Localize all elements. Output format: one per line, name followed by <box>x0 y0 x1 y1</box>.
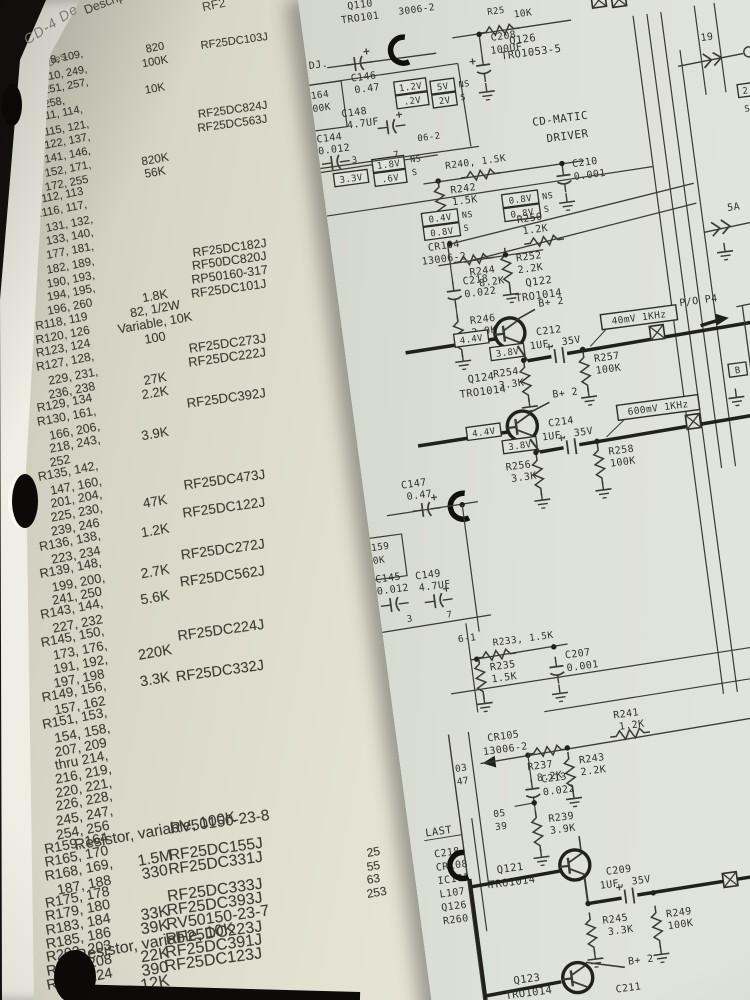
wire <box>566 210 570 211</box>
label-c214: C214 <box>548 415 575 429</box>
junction-dot <box>531 800 537 806</box>
wire <box>434 494 435 500</box>
wire <box>625 890 627 904</box>
wire <box>476 64 490 66</box>
wire <box>660 962 664 963</box>
label-cdm1: CD-MATIC <box>531 109 588 129</box>
label-bp2a: B+ 2 <box>538 296 565 310</box>
wire <box>735 389 736 398</box>
binder-hole <box>12 474 38 528</box>
desc-line: 2.7K <box>139 560 170 581</box>
voltage-label: 3.8V <box>508 440 533 453</box>
last-list-item: R260 <box>442 913 469 927</box>
capacitor-icon <box>448 296 462 300</box>
desc-line: 330 <box>141 862 170 884</box>
wire <box>502 321 518 331</box>
label-r250v: 1.2K <box>522 223 549 237</box>
last-list-item: L107 <box>439 886 466 900</box>
desc-line: 5.6K <box>139 588 171 609</box>
label-f39: 39 <box>494 821 508 834</box>
wire <box>647 14 737 692</box>
label-f00k: 00K <box>312 102 332 115</box>
wire <box>557 174 571 176</box>
wire <box>378 127 388 128</box>
voltage-label: 3.8V <box>495 347 520 360</box>
wire <box>559 201 575 203</box>
wire <box>572 979 588 989</box>
wire <box>528 402 551 413</box>
wire <box>390 598 392 612</box>
wire <box>425 601 435 602</box>
wire <box>653 953 669 955</box>
desc-line: 100 <box>143 328 167 346</box>
wire <box>559 701 563 702</box>
label-f47: 47 <box>456 775 470 788</box>
wire <box>477 702 493 704</box>
wire <box>567 440 569 454</box>
wire <box>735 405 739 406</box>
wire <box>322 163 332 164</box>
label-dj: DJ. <box>308 59 329 72</box>
wire <box>563 205 573 206</box>
wire <box>657 958 667 959</box>
wire <box>482 55 483 65</box>
label-c213: C213 <box>541 771 568 785</box>
wire <box>581 396 597 398</box>
wire <box>554 349 556 363</box>
label-r25v: 10K <box>513 7 533 20</box>
transistor-icon <box>561 961 595 995</box>
wire <box>565 184 566 192</box>
resistor-icon <box>584 912 598 955</box>
label-q121: Q121 <box>496 861 524 876</box>
wire <box>588 898 622 903</box>
wire <box>510 286 511 295</box>
part-line: RF25DC392J <box>186 385 267 411</box>
wire <box>711 221 721 236</box>
label-q123t: TRO1014 <box>505 984 553 1000</box>
wire <box>340 161 350 162</box>
label-n5a: 5A <box>727 201 741 214</box>
wire <box>724 259 728 260</box>
wire <box>588 388 589 397</box>
label-p7b: 7 <box>446 610 453 621</box>
label-f03: 03 <box>454 762 468 775</box>
label-f164: 164 <box>310 89 330 102</box>
part-line: RF25DC103J <box>200 31 269 52</box>
label-r249v: 100K <box>667 918 694 932</box>
punch-hole-arc <box>389 37 409 65</box>
wire <box>382 615 491 633</box>
wire <box>603 498 607 499</box>
label-ns1: NS <box>458 79 470 90</box>
voltage-label: 4.4V <box>472 427 497 440</box>
wire <box>462 352 463 361</box>
binder-hole <box>2 84 22 126</box>
wire <box>540 448 564 452</box>
wire <box>563 978 572 979</box>
label-r252v: 2.2K <box>517 262 544 276</box>
wire <box>462 505 479 632</box>
label-n2s: S <box>744 104 750 115</box>
part-line: RF25DC122J <box>182 494 267 520</box>
label-bp2b: B+ 2 <box>552 386 579 400</box>
label-c213v: 0.022 <box>542 783 575 798</box>
wire <box>470 879 486 1000</box>
junction-dot <box>585 901 591 907</box>
junction-dot <box>559 160 565 166</box>
wire <box>562 166 563 176</box>
wire <box>714 3 726 92</box>
junction-dot <box>551 644 557 650</box>
wire <box>455 360 471 362</box>
wire <box>541 491 542 500</box>
wire <box>510 302 514 303</box>
wire <box>434 594 436 608</box>
wire <box>503 326 505 342</box>
voltage-label: 4.4V <box>459 334 484 347</box>
label-c146v: 0.47 <box>354 82 381 96</box>
wire <box>366 48 367 54</box>
label-c210: C210 <box>571 156 598 170</box>
label-s4: S <box>543 205 550 216</box>
wire <box>453 281 454 291</box>
desc-line: 56K <box>143 164 166 181</box>
voltage-label: 0.8V <box>430 226 455 239</box>
wire <box>556 697 566 698</box>
wire <box>528 357 552 361</box>
wire <box>579 836 581 850</box>
label-q122: Q122 <box>525 274 553 289</box>
label-c207: C207 <box>564 647 591 661</box>
label-q124t: TRO1014 <box>459 383 507 401</box>
label-q126: Q126 <box>509 32 537 47</box>
voltage-label: 2V <box>438 96 451 107</box>
wire <box>569 867 585 877</box>
label-r258v: 100K <box>609 455 636 469</box>
resistor-icon <box>530 810 544 853</box>
label-f062: 06-2 <box>417 131 441 144</box>
punch-hole-arc <box>449 493 469 521</box>
label-ns4: NS <box>542 191 554 202</box>
wire <box>529 398 530 407</box>
wire <box>567 853 583 863</box>
voltage-label: 3.3V <box>339 173 364 186</box>
wire <box>717 251 733 253</box>
label-s3: S <box>463 223 470 234</box>
wire <box>570 965 586 975</box>
wire <box>331 156 333 170</box>
wire <box>459 365 469 366</box>
voltage-label: 5V <box>436 82 449 93</box>
label-n19: 19 <box>700 31 714 44</box>
label-r239v: 3.9K <box>549 823 576 837</box>
resistor-icon <box>650 905 664 948</box>
edge-fragment: 253 <box>366 884 388 901</box>
wire <box>574 438 576 454</box>
wire <box>447 290 461 292</box>
desc-line: 3.3K <box>139 670 171 691</box>
wire <box>381 605 391 606</box>
wire <box>495 334 504 335</box>
label-cdm2: DRIVER <box>546 127 589 145</box>
label-r235v: 1.5K <box>491 671 518 685</box>
wire <box>458 63 471 147</box>
wire <box>462 369 466 370</box>
label-f0k: 0K <box>372 554 386 567</box>
wire <box>483 695 484 704</box>
wire <box>602 481 603 490</box>
label-bp2c: B+ 2 <box>627 953 654 967</box>
binder-hole <box>54 950 96 1000</box>
wire <box>573 806 577 807</box>
label-c210v: 0.001 <box>573 168 606 183</box>
label-ns3: NS <box>461 210 473 221</box>
label-r257v: 100K <box>595 363 622 377</box>
wire <box>507 427 516 428</box>
transistor-icon <box>558 848 592 882</box>
resistor-icon <box>527 744 568 758</box>
label-c147v: 0.47 <box>406 489 433 503</box>
resistor-icon <box>578 350 592 393</box>
desc-line: 1.2K <box>140 519 171 540</box>
wire <box>515 414 531 424</box>
wire <box>504 335 520 345</box>
wire <box>633 16 723 694</box>
wire <box>732 401 742 402</box>
wire <box>486 100 490 101</box>
wire <box>486 83 487 92</box>
label-c218v: 0.022 <box>464 285 497 300</box>
label-r243v: 2.2K <box>580 764 607 778</box>
wire <box>550 666 564 668</box>
wire <box>484 74 485 82</box>
resistor-icon <box>460 168 501 182</box>
wire <box>596 489 612 491</box>
label-p3b: 3 <box>406 614 413 625</box>
label-s2: S <box>411 168 418 179</box>
wire <box>517 428 533 438</box>
part-line: RF25DC473J <box>183 467 267 493</box>
wire <box>660 945 661 954</box>
part-line: RF25DC332J <box>175 658 265 686</box>
wire <box>531 779 532 789</box>
voltage-label: B <box>734 366 741 377</box>
wire <box>479 34 482 55</box>
label-c211: C211 <box>615 981 642 995</box>
wire <box>354 57 356 71</box>
wire <box>515 309 536 320</box>
wire <box>484 711 488 712</box>
wire <box>541 865 545 866</box>
wire <box>525 788 539 790</box>
wire <box>560 866 569 867</box>
wire <box>728 396 744 398</box>
label-r256v: 3.3K <box>511 471 538 485</box>
capacitor-icon <box>526 794 540 798</box>
desc-line: 10K <box>144 81 166 96</box>
wire <box>721 219 731 234</box>
desc-line: 220K <box>137 642 173 664</box>
wire <box>595 967 599 968</box>
wire <box>588 958 604 960</box>
wire <box>534 856 550 858</box>
wire <box>399 112 400 118</box>
part-line: RF25DC272J <box>180 535 266 562</box>
wire <box>599 493 609 494</box>
arrowhead-icon <box>715 312 729 326</box>
wire <box>387 120 389 134</box>
wire <box>562 347 564 363</box>
wire <box>534 499 550 501</box>
wire <box>594 950 595 959</box>
resistor-icon <box>592 443 606 486</box>
photo-frame: Description RF2 Ref. Des. R108, 109,110,… <box>0 0 750 1000</box>
junction-dot <box>476 31 482 37</box>
wire <box>514 803 534 807</box>
wire <box>566 797 582 799</box>
label-c209: C209 <box>605 864 632 878</box>
wire <box>736 304 750 307</box>
desc-line: 47K <box>142 492 169 511</box>
wire <box>522 406 538 408</box>
label-r25: R25 <box>487 6 506 18</box>
part-line: RF25DC562J <box>179 562 266 589</box>
part-number-fragment: RF2 <box>201 0 227 14</box>
wire <box>541 508 545 509</box>
wire <box>443 599 453 600</box>
part-line: RF25DC224J <box>177 617 266 645</box>
wire <box>555 657 556 667</box>
label-r233: R233, 1.5K <box>492 630 554 649</box>
wire <box>568 858 570 874</box>
desc-line: 100K <box>141 53 169 69</box>
list-header-description: Description <box>82 0 145 17</box>
wire <box>327 53 436 68</box>
wire <box>363 62 373 63</box>
wire <box>632 888 634 904</box>
wire <box>552 692 568 694</box>
desc-line: 3.9K <box>140 423 170 443</box>
label-f05: 05 <box>493 808 507 821</box>
last-list-item: Q126 <box>441 900 468 914</box>
wire <box>566 193 567 202</box>
wire <box>540 848 541 857</box>
capacitor-icon <box>550 672 564 676</box>
wire <box>396 125 406 126</box>
wire <box>559 685 560 694</box>
wire <box>588 329 608 346</box>
wire <box>399 603 409 604</box>
wire <box>479 91 495 93</box>
label-q110t: TRO101 <box>340 10 380 26</box>
wire <box>537 861 547 862</box>
label-q124: Q124 <box>467 370 495 385</box>
wire <box>472 58 473 64</box>
wire <box>571 970 573 986</box>
wire <box>700 320 718 325</box>
wire <box>585 878 588 904</box>
label-f159: 159 <box>370 541 390 554</box>
wire <box>538 503 548 504</box>
wire <box>446 586 447 592</box>
terminal-icon <box>743 46 750 57</box>
wire <box>482 95 492 96</box>
voltage-label: 2 <box>742 86 749 97</box>
wire <box>605 420 627 438</box>
wire <box>588 405 592 406</box>
desc-line: 820 <box>145 40 165 55</box>
wire <box>694 6 706 95</box>
wire <box>570 802 580 803</box>
label-f3006: 3006-2 <box>398 2 436 18</box>
label-r245v: 3.3K <box>607 924 634 938</box>
wire <box>515 419 517 435</box>
label-c212: C212 <box>535 324 562 338</box>
label-r240: R240, 1.5K <box>445 153 507 172</box>
wire <box>585 400 595 401</box>
wire <box>480 707 490 708</box>
wire <box>721 255 731 256</box>
wire <box>345 64 355 65</box>
capacitor-icon <box>477 70 491 74</box>
wire <box>724 243 725 252</box>
